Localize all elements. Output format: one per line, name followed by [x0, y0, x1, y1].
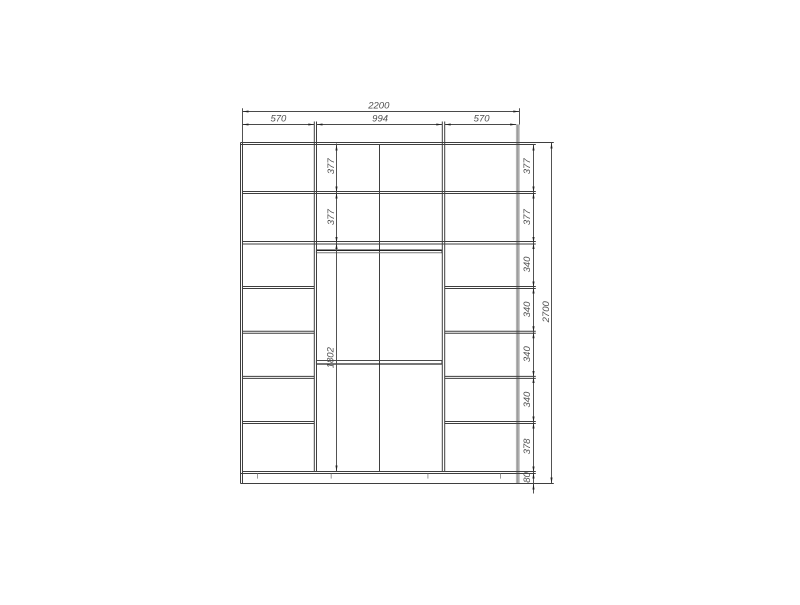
- svg-text:377: 377: [522, 209, 533, 226]
- svg-text:377: 377: [326, 209, 337, 226]
- svg-text:377: 377: [522, 158, 533, 175]
- svg-text:377: 377: [326, 158, 337, 175]
- svg-text:2700: 2700: [541, 301, 552, 324]
- svg-text:570: 570: [474, 114, 491, 125]
- svg-text:2200: 2200: [367, 100, 390, 111]
- svg-text:80: 80: [522, 472, 533, 483]
- svg-text:340: 340: [522, 391, 533, 408]
- svg-text:378: 378: [522, 438, 533, 455]
- svg-text:340: 340: [522, 256, 533, 273]
- svg-text:340: 340: [522, 346, 533, 363]
- svg-text:1802: 1802: [325, 346, 336, 368]
- svg-text:340: 340: [522, 301, 533, 318]
- svg-text:994: 994: [372, 114, 388, 125]
- svg-text:570: 570: [270, 114, 287, 125]
